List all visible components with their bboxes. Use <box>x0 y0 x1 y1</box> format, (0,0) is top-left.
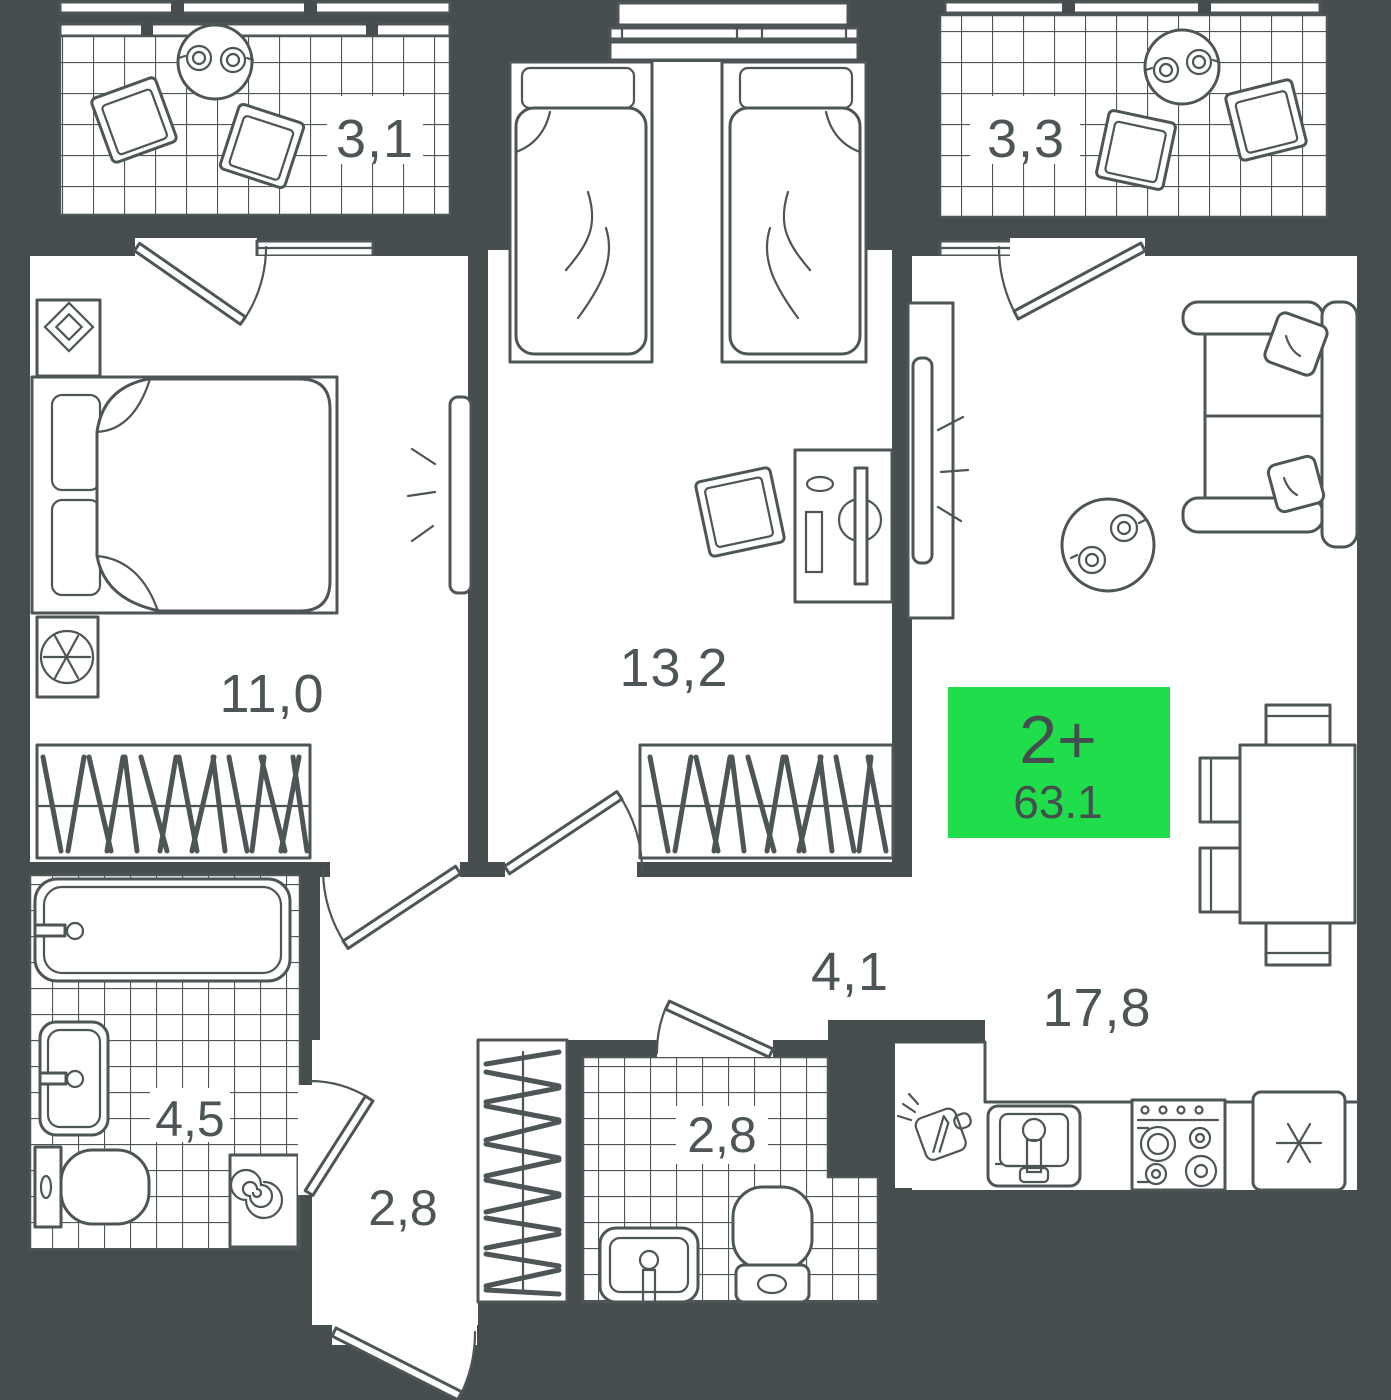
bedroom-left: 11,0 <box>30 238 471 862</box>
chair <box>1266 923 1330 965</box>
balcony-top-right: 3,3 <box>940 1 1327 217</box>
area-label-corridor: 2,8 <box>368 1180 438 1236</box>
cistern <box>736 1265 809 1302</box>
area-label-bedroom-middle: 13,2 <box>619 638 728 698</box>
wall-chunk <box>878 1020 985 1042</box>
washing-machine <box>230 1155 298 1247</box>
sink <box>40 1022 108 1135</box>
area-label-bathroom-left: 4,5 <box>155 1091 225 1147</box>
window-sill <box>610 42 858 60</box>
pillow <box>1267 455 1326 514</box>
toilet <box>733 1187 812 1302</box>
railing <box>945 2 1320 13</box>
window-middle-top <box>610 3 858 60</box>
window <box>610 28 858 39</box>
chair <box>1266 705 1330 747</box>
bowl <box>733 1187 812 1269</box>
wardrobe <box>37 745 310 858</box>
sofa <box>1183 302 1357 547</box>
tv <box>913 358 932 563</box>
floor-plan: 3,1 3,3 <box>0 0 1391 1400</box>
area-label-living: 17,8 <box>1042 978 1151 1038</box>
chair <box>1200 758 1240 822</box>
chair <box>1096 110 1177 191</box>
chair <box>1225 79 1307 161</box>
toilet <box>35 1147 149 1227</box>
floor-plan-svg: 3,1 3,3 <box>0 0 1391 1400</box>
area-label-bathroom-middle: 2,8 <box>687 1107 757 1163</box>
sink <box>600 1228 698 1302</box>
single-bed <box>722 62 866 362</box>
unit-badge: 2+ 63.1 <box>948 687 1170 838</box>
tv <box>450 397 471 593</box>
balcony-slab <box>618 3 848 25</box>
bedroom-middle: 13,2 <box>488 62 893 862</box>
round-table <box>1145 30 1219 104</box>
bathroom-left: 4,5 <box>30 875 300 1250</box>
area-label-bedroom-left: 11,0 <box>219 664 324 724</box>
desk-chair <box>695 467 785 557</box>
badge-room-type: 2+ <box>1019 702 1097 778</box>
round-table <box>178 25 252 99</box>
hall-wardrobe <box>478 1040 567 1302</box>
blanket <box>516 108 646 354</box>
wardrobe <box>640 745 893 858</box>
desk <box>795 450 892 602</box>
bowl <box>61 1150 149 1224</box>
backrest <box>1322 302 1357 547</box>
railing <box>60 2 450 13</box>
badge-area-value: 63.1 <box>1013 776 1103 828</box>
double-bed <box>32 377 337 613</box>
coffee-table <box>1062 499 1154 591</box>
stove <box>1132 1100 1225 1190</box>
area-label-balcony-right: 3,3 <box>987 109 1065 169</box>
bathtub <box>35 879 290 981</box>
area-label-balcony-left: 3,1 <box>336 109 414 169</box>
balcony-top-left: 3,1 <box>60 1 450 215</box>
dining-table <box>1240 745 1355 923</box>
kitchen-sink <box>988 1106 1080 1186</box>
area-label-hallway: 4,1 <box>811 942 889 1002</box>
single-bed <box>510 62 652 362</box>
cistern <box>35 1147 61 1227</box>
chair <box>1200 848 1240 912</box>
railing <box>60 24 450 36</box>
blanket <box>730 108 860 354</box>
monitor <box>855 468 867 584</box>
fridge <box>1253 1092 1345 1190</box>
